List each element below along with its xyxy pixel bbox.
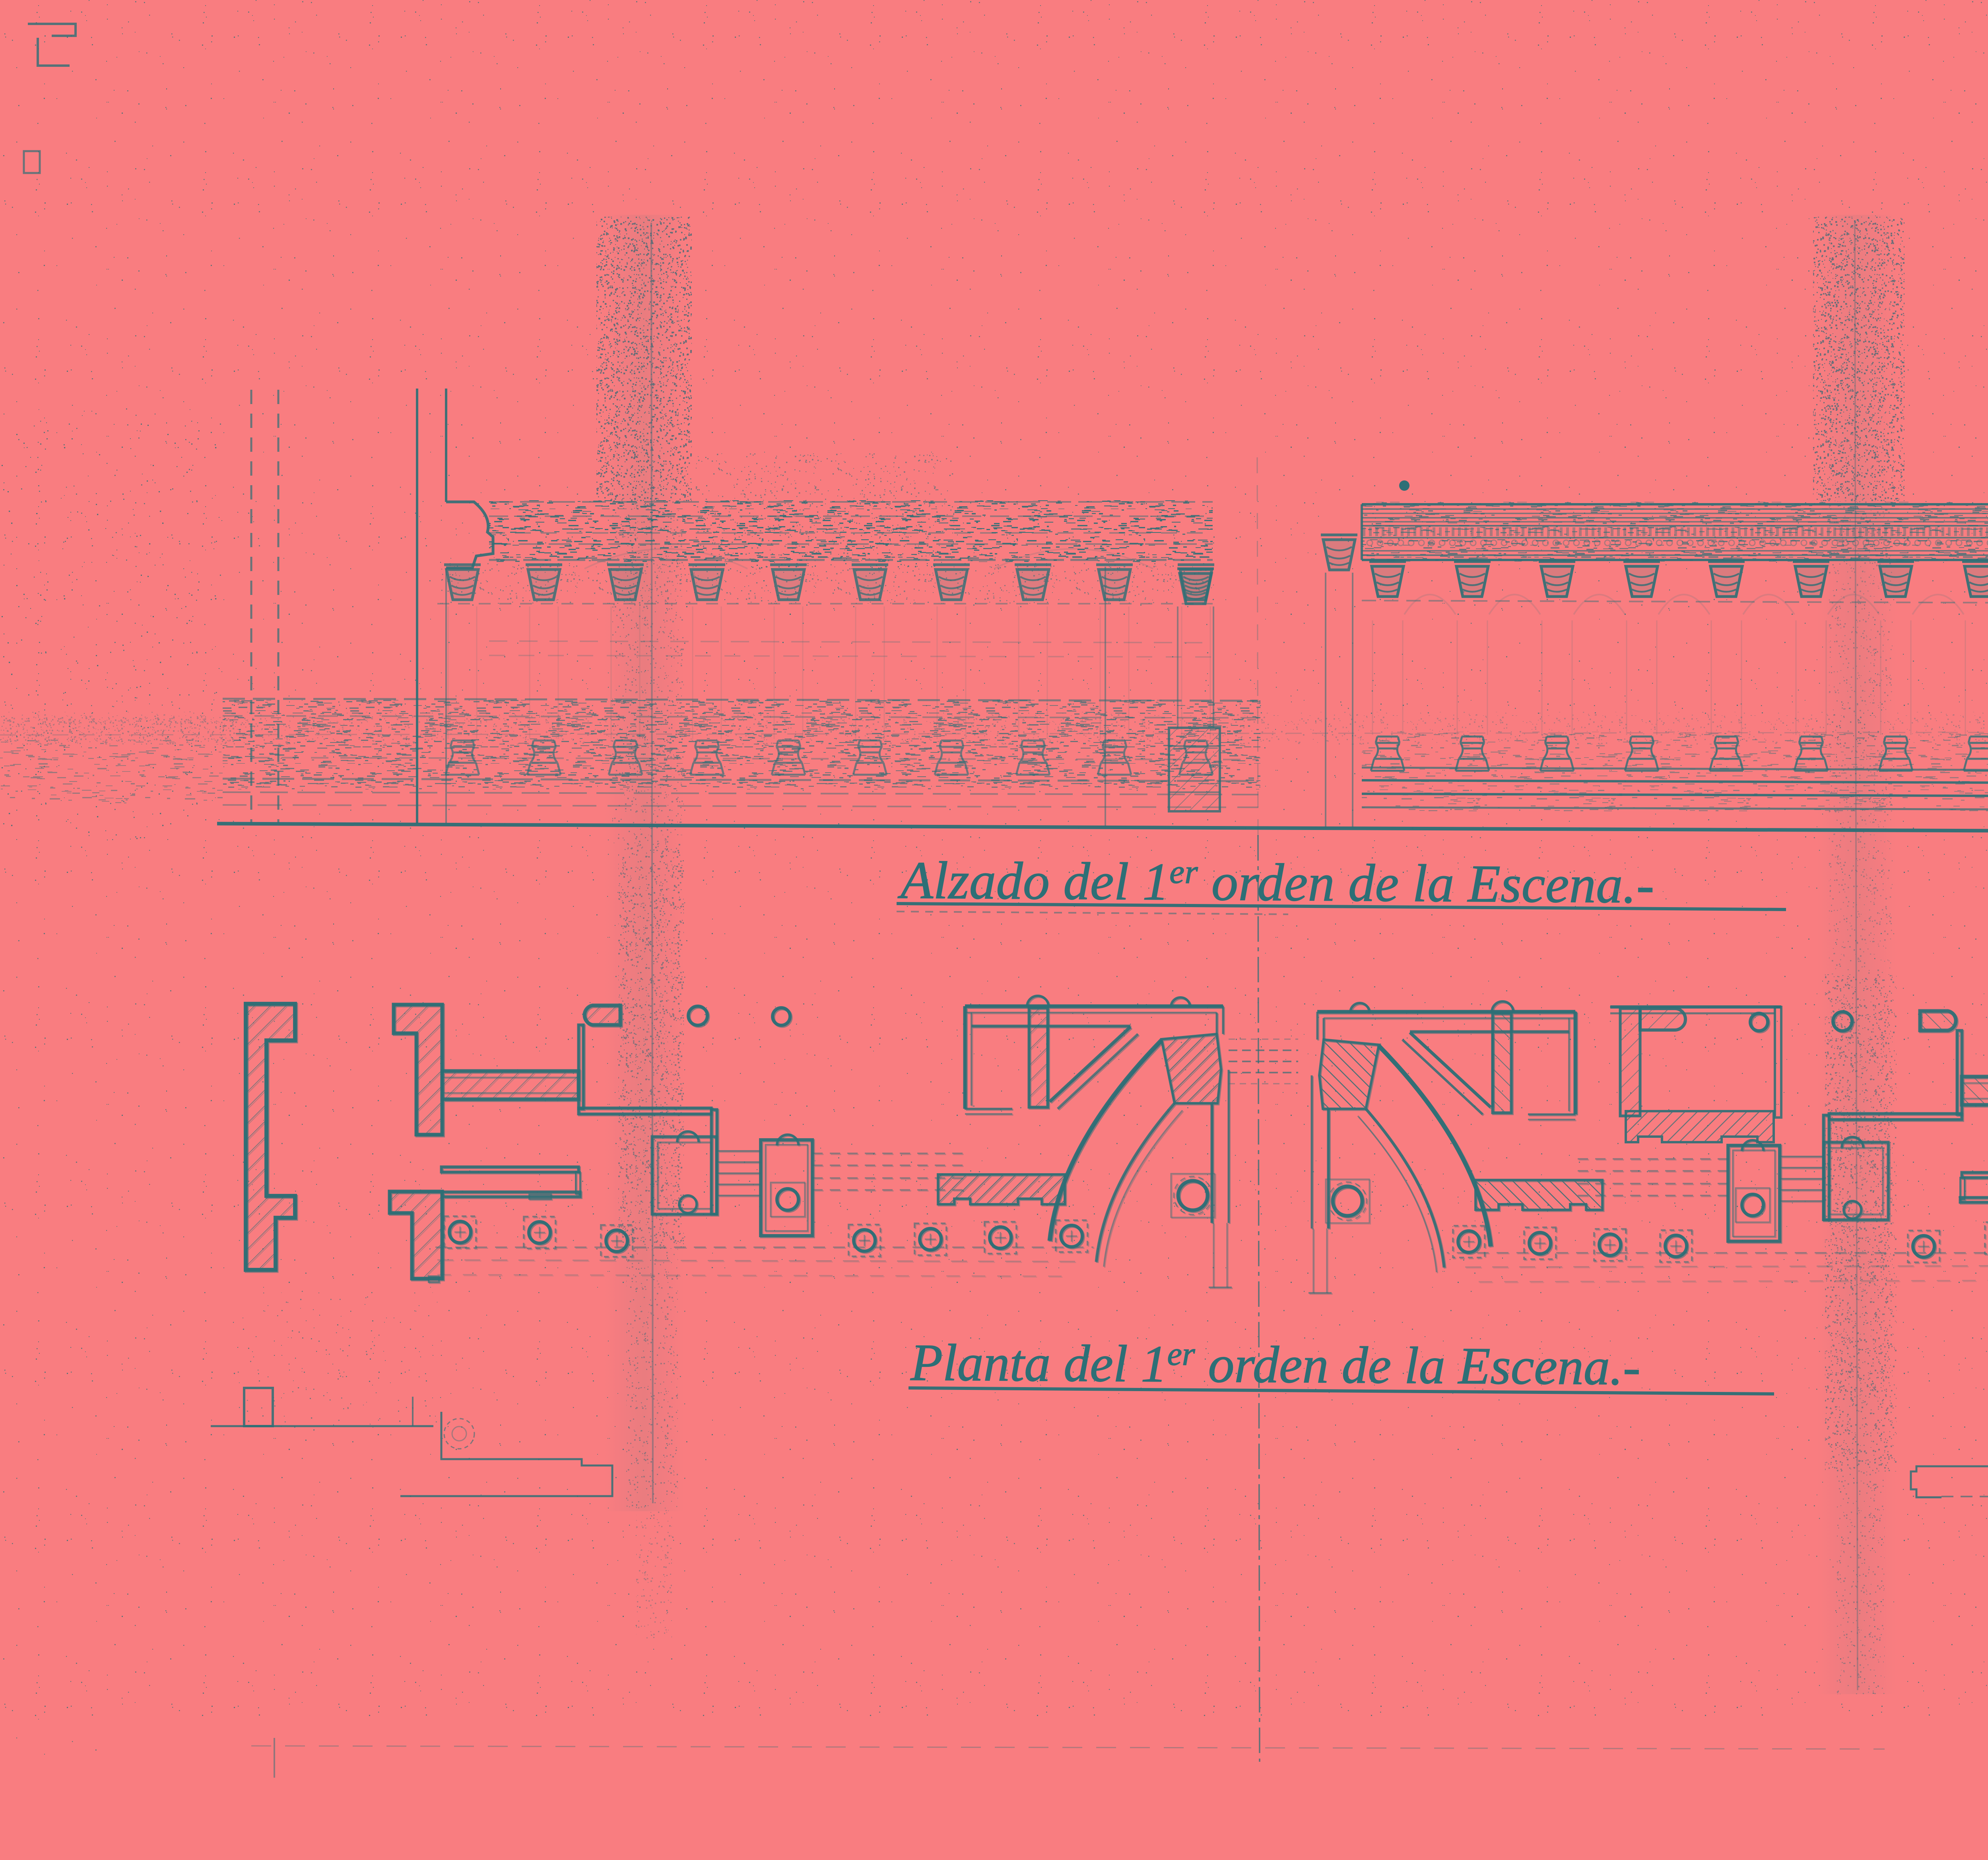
svg-text:Planta del 1er orden de la Esc: Planta del 1er orden de la Escena.- xyxy=(910,1333,1641,1396)
